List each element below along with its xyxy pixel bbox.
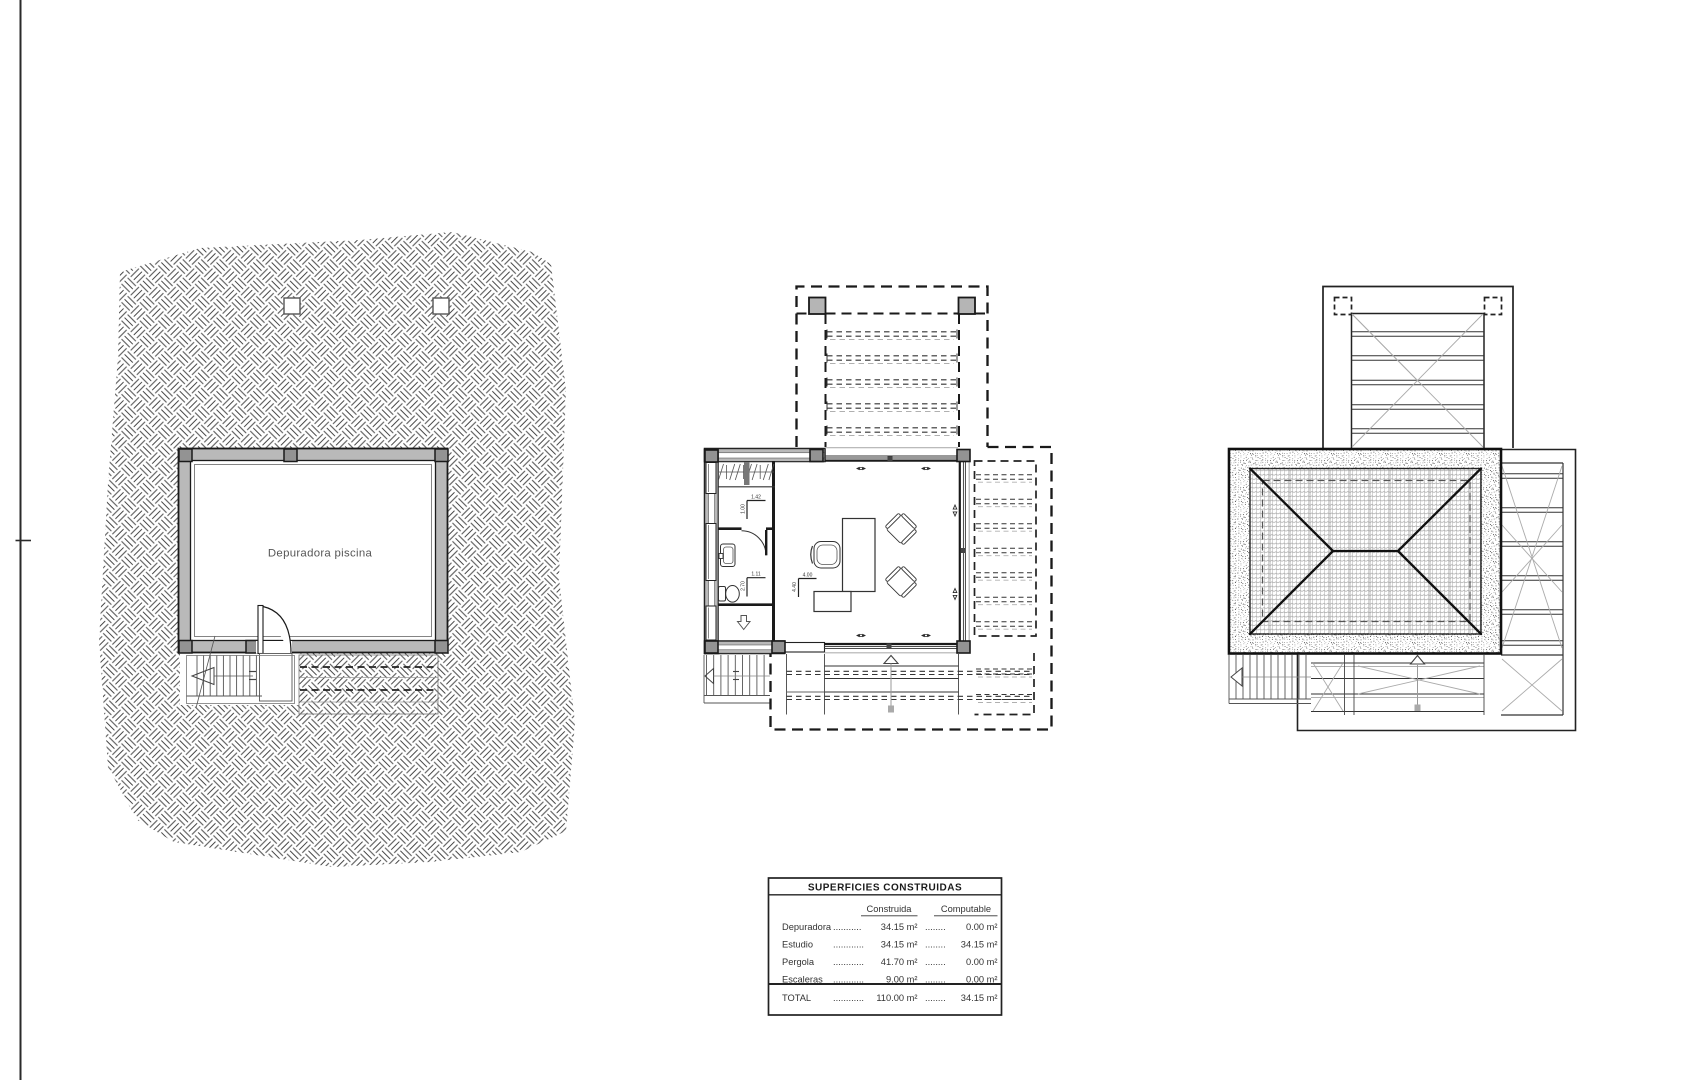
svg-text:Depuradora: Depuradora bbox=[782, 922, 832, 932]
svg-text:...........: ........... bbox=[833, 922, 861, 932]
svg-text:0.00 m²: 0.00 m² bbox=[966, 974, 998, 984]
svg-text:............: ............ bbox=[833, 940, 864, 950]
svg-text:Pergola: Pergola bbox=[782, 957, 815, 967]
svg-text:TOTAL: TOTAL bbox=[782, 993, 811, 1003]
svg-text:........: ........ bbox=[925, 993, 946, 1003]
svg-text:34.15 m²: 34.15 m² bbox=[961, 940, 998, 950]
svg-text:34.15 m²: 34.15 m² bbox=[881, 940, 918, 950]
svg-text:1.00: 1.00 bbox=[741, 504, 747, 514]
svg-text:............: ............ bbox=[833, 957, 864, 967]
svg-text:4.00: 4.00 bbox=[803, 573, 813, 579]
svg-text:Escaleras: Escaleras bbox=[782, 974, 823, 984]
svg-text:1.11: 1.11 bbox=[751, 572, 761, 578]
svg-text:9.00 m²: 9.00 m² bbox=[886, 974, 918, 984]
svg-text:4.40: 4.40 bbox=[792, 582, 798, 592]
svg-text:........: ........ bbox=[925, 922, 946, 932]
svg-text:0.00 m²: 0.00 m² bbox=[966, 922, 998, 932]
svg-text:Computable: Computable bbox=[941, 904, 991, 914]
svg-text:........: ........ bbox=[925, 957, 946, 967]
svg-text:Depuradora piscina: Depuradora piscina bbox=[268, 548, 373, 560]
svg-text:41.70 m²: 41.70 m² bbox=[881, 957, 918, 967]
svg-text:............: ............ bbox=[833, 974, 864, 984]
svg-text:34.15 m²: 34.15 m² bbox=[961, 993, 998, 1003]
svg-text:1.42: 1.42 bbox=[751, 495, 761, 501]
svg-text:............: ............ bbox=[833, 993, 864, 1003]
svg-text:110.00 m²: 110.00 m² bbox=[876, 993, 917, 1003]
svg-text:0.00 m²: 0.00 m² bbox=[966, 957, 998, 967]
svg-text:SUPERFICIES CONSTRUIDAS: SUPERFICIES CONSTRUIDAS bbox=[808, 883, 962, 894]
svg-text:34.15 m²: 34.15 m² bbox=[881, 922, 918, 932]
svg-text:2.70: 2.70 bbox=[741, 581, 747, 591]
svg-text:........: ........ bbox=[925, 940, 946, 950]
svg-text:Construida: Construida bbox=[867, 904, 913, 914]
svg-text:Estudio: Estudio bbox=[782, 940, 813, 950]
svg-text:........: ........ bbox=[925, 974, 946, 984]
